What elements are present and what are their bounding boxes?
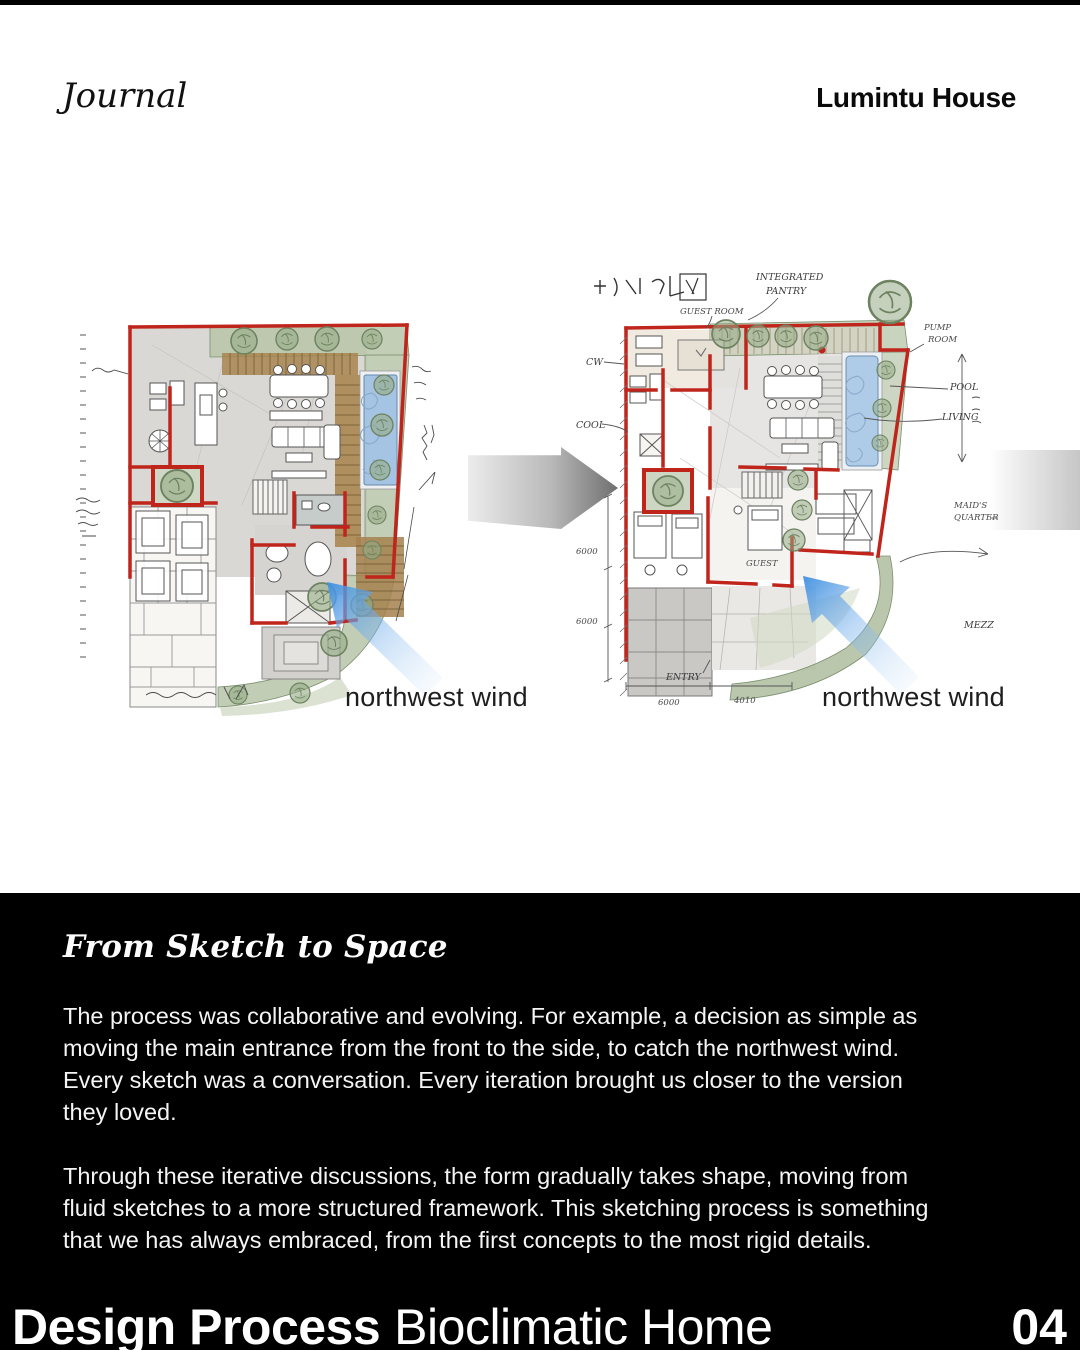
label-pool: POOL [949,382,978,393]
project-title: Lumintu House [816,82,1016,114]
wind-label-left: northwest wind [345,682,528,713]
paragraph-1-line: The process was collaborative and evolvi… [63,1000,1043,1032]
label-pantry: PANTRY [765,286,808,297]
paragraph-2-line: Through these iterative discussions, the… [63,1160,1043,1192]
label-mezz: MEZZ [963,620,994,631]
floor-plan-sketch-initial [72,275,472,720]
section-heading: From Sketch to Space [63,929,448,965]
paragraph-2: Through these iterative discussions, the… [63,1160,1043,1256]
footer-bar: Design ProcessBioclimatic Home 04 [0,1296,1080,1350]
page-number: 04 [1011,1298,1067,1350]
label-guest: GUEST [746,559,779,569]
label-cw: CW [586,357,604,368]
floor-plan-initial-drawing [72,275,472,720]
label-room: ROOM [927,335,957,345]
paragraph-1: The process was collaborative and evolvi… [63,1000,1043,1128]
journal-page: Journal Lumintu House [0,0,1080,1350]
footer-title-regular: Bioclimatic Home [394,1299,772,1350]
wind-label-right: northwest wind [822,682,1005,713]
label-maids: MAID'S [953,501,987,511]
dim-6000-left-upper: 6000 [576,547,598,557]
next-iteration-arrow-icon [990,450,1080,530]
top-border-bar [0,0,1080,5]
dim-6000-left-lower: 6000 [576,617,598,627]
footer-title: Design ProcessBioclimatic Home [12,1298,772,1350]
label-cool: COOL [576,420,605,431]
paragraph-2-line: that we has always embraced, from the fi… [63,1224,1043,1256]
label-integrated: INTEGRATED [755,272,824,283]
journal-brand: Journal [62,76,187,116]
paragraph-1-line: they loved. [63,1096,1043,1128]
footer-title-bold: Design Process [12,1299,380,1350]
paragraph-1-line: Every sketch was a conversation. Every i… [63,1064,1043,1096]
paragraph-1-line: moving the main entrance from the front … [63,1032,1043,1064]
label-living: LIVING [941,412,979,423]
dim-4010-bottom: 4010 [733,696,756,706]
floor-plan-revised-drawing: INTEGRATED PANTRY GUEST ROOM PUMP ROOM C… [560,258,1000,718]
label-entry: ENTRY [665,672,702,683]
label-guest-room: GUEST ROOM [680,307,744,317]
dim-6000-bottom: 6000 [658,698,680,708]
paragraph-2-line: fluid sketches to a more structured fram… [63,1192,1043,1224]
label-pump: PUMP [923,323,951,333]
floor-plan-sketch-revised: INTEGRATED PANTRY GUEST ROOM PUMP ROOM C… [560,258,1000,718]
narrative-section: From Sketch to Space The process was col… [0,893,1080,1350]
